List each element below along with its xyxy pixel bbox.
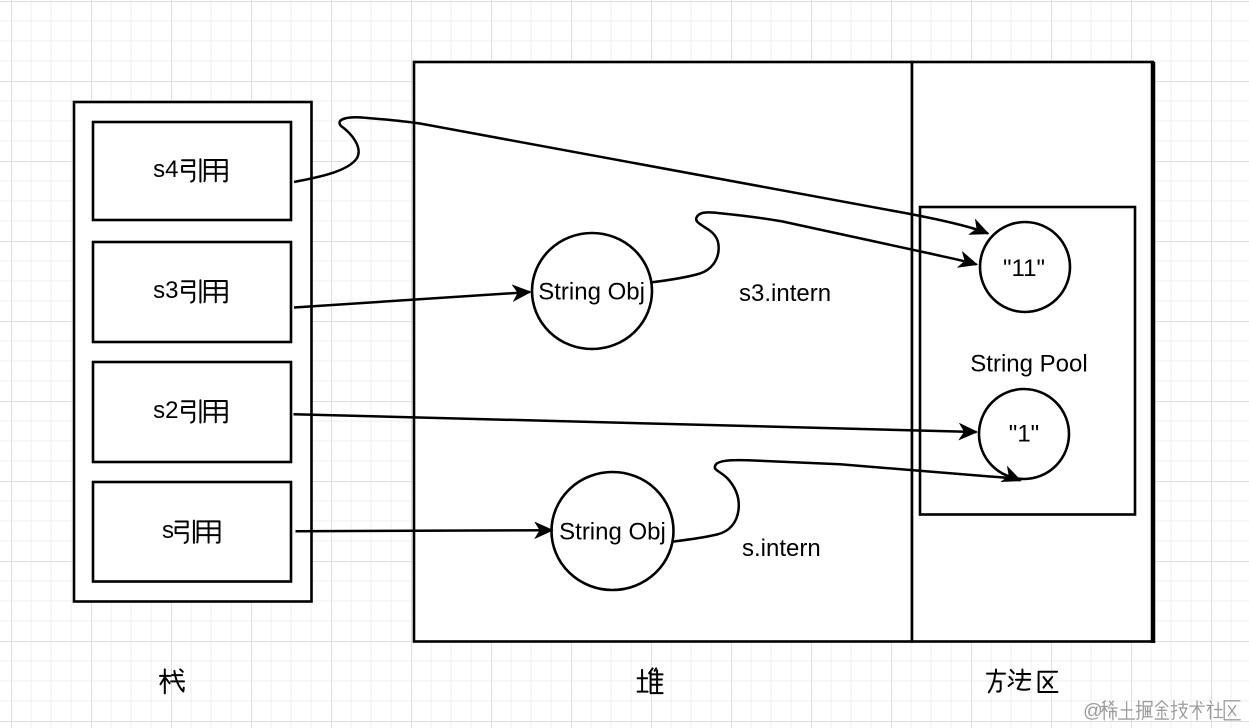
svg-text:"1": "1" [1009,421,1039,448]
svg-text:s.intern: s.intern [742,535,821,562]
svg-text:s4: s4 [153,156,178,183]
svg-text:String Obj: String Obj [559,519,666,546]
svg-text:s3.intern: s3.intern [739,280,831,307]
svg-text:@: @ [1083,700,1103,722]
svg-text:s3: s3 [153,277,178,304]
svg-text:String Pool: String Pool [970,351,1087,378]
svg-text:s2: s2 [153,397,178,424]
svg-text:"11": "11" [1003,255,1045,282]
svg-text:String Obj: String Obj [538,279,645,306]
svg-text:s: s [162,517,174,544]
